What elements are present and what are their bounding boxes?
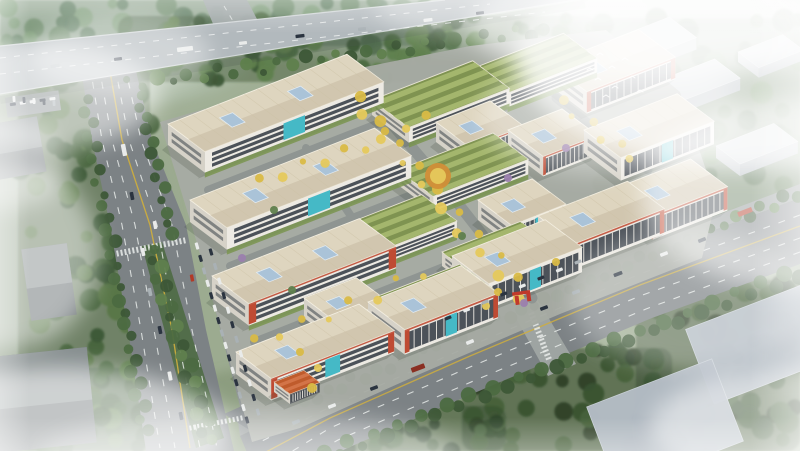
street-tree: [549, 359, 564, 374]
street-tree: [117, 317, 131, 331]
vignette-bottom: [0, 417, 800, 451]
street-tree: [360, 45, 373, 58]
aerial-rendering-industrial-park: [0, 0, 800, 451]
tree-canopy: [71, 167, 87, 183]
street-tree: [112, 294, 126, 308]
street-tree: [391, 40, 401, 50]
campus-tree: [458, 232, 466, 240]
street-tree: [317, 56, 325, 64]
campus-tree: [552, 258, 560, 266]
red-accent-strip: [388, 332, 394, 354]
campus-tree: [504, 174, 512, 182]
street-tree: [376, 134, 386, 144]
street-tree: [126, 331, 136, 341]
street-tree: [109, 234, 123, 248]
street-tree: [514, 372, 524, 382]
street-tree: [184, 358, 199, 373]
street-tree: [357, 109, 368, 120]
street-tree: [140, 123, 152, 135]
vignette-left: [0, 0, 30, 451]
tree-canopy: [518, 400, 535, 417]
street-tree: [165, 300, 178, 313]
campus-tree: [520, 299, 528, 307]
street-tree: [461, 387, 476, 402]
street-tree: [320, 159, 329, 168]
street-tree: [331, 49, 340, 58]
street-tree: [340, 144, 348, 152]
street-tree: [513, 273, 522, 282]
street-tree: [576, 353, 587, 364]
street-tree: [440, 398, 455, 413]
campus-tree: [238, 254, 246, 262]
street-tree: [114, 262, 122, 270]
street-tree: [400, 160, 406, 166]
street-tree: [157, 196, 165, 204]
street-tree: [90, 178, 99, 187]
street-tree: [200, 74, 210, 84]
street-tree: [99, 223, 112, 236]
street-tree: [96, 200, 107, 211]
street-tree: [362, 146, 369, 153]
street-tree: [415, 161, 424, 170]
street-tree: [150, 274, 161, 285]
street-tree: [373, 296, 382, 305]
street-tree: [130, 354, 143, 367]
street-tree: [456, 208, 464, 216]
campus-tree: [314, 364, 322, 372]
street-tree: [104, 250, 114, 260]
street-tree: [165, 313, 174, 322]
campus-tree: [430, 168, 446, 184]
street-tree: [121, 308, 131, 318]
fog-patch: [480, 55, 740, 175]
street-tree: [396, 139, 404, 147]
street-tree: [375, 115, 387, 127]
campus-tree: [288, 286, 296, 294]
street-tree: [255, 174, 264, 183]
tree-canopy: [616, 365, 634, 383]
street-tree: [240, 58, 253, 71]
street-tree: [124, 344, 134, 354]
street-tree: [150, 245, 160, 255]
street-tree: [299, 49, 313, 63]
street-tree: [148, 136, 160, 148]
street-tree: [381, 127, 389, 135]
vignette-right: [750, 0, 800, 451]
street-tree: [189, 376, 202, 389]
street-tree: [250, 334, 258, 342]
street-tree: [475, 230, 483, 238]
street-tree: [393, 275, 399, 281]
street-tree: [421, 37, 429, 45]
street-tree: [526, 373, 536, 383]
street-tree: [94, 164, 105, 175]
campus-tree: [270, 206, 278, 214]
street-tree: [165, 227, 179, 241]
street-tree: [177, 339, 189, 351]
street-tree: [176, 350, 188, 362]
red-accent-strip: [249, 303, 256, 325]
street-tree: [475, 248, 484, 257]
street-tree: [108, 273, 120, 285]
street-tree: [100, 191, 108, 199]
street-tree: [344, 296, 352, 304]
street-tree: [493, 270, 505, 282]
red-accent-strip: [389, 248, 396, 270]
tree-canopy: [90, 328, 104, 342]
street-tree: [500, 380, 514, 394]
street-tree: [163, 219, 171, 227]
street-tree: [286, 58, 299, 71]
street-tree: [145, 147, 158, 160]
street-tree: [422, 111, 431, 120]
street-tree: [152, 159, 164, 171]
street-tree: [479, 390, 492, 403]
street-tree: [155, 293, 167, 305]
scene-svg: [0, 0, 800, 451]
campus-tree: [296, 348, 304, 356]
street-tree: [402, 125, 410, 133]
street-tree: [300, 158, 306, 164]
street-tree: [377, 49, 387, 59]
street-tree: [435, 202, 447, 214]
street-tree: [420, 273, 427, 280]
street-tree: [326, 317, 332, 323]
street-tree: [150, 172, 160, 182]
street-tree: [436, 40, 445, 49]
street-tree: [272, 57, 280, 65]
street-tree: [166, 330, 180, 344]
street-tree: [355, 91, 366, 102]
street-tree: [117, 283, 125, 291]
tree-canopy: [556, 375, 569, 388]
street-tree: [155, 260, 169, 274]
street-tree: [160, 279, 173, 292]
red-accent-strip: [405, 330, 410, 354]
street-tree: [278, 172, 288, 182]
red-accent-strip: [493, 295, 498, 319]
street-tree: [276, 333, 283, 340]
street-tree: [405, 47, 415, 57]
street-tree: [212, 63, 222, 73]
street-tree: [534, 362, 548, 376]
street-tree: [161, 207, 173, 219]
street-tree: [86, 154, 96, 164]
street-tree: [228, 69, 238, 79]
vignette-top: [0, 0, 800, 34]
street-tree: [159, 181, 171, 193]
street-tree: [260, 69, 267, 76]
campus-tree: [307, 383, 317, 393]
street-tree: [418, 181, 426, 189]
street-tree: [104, 213, 114, 223]
street-tree: [298, 315, 306, 323]
street-tree: [498, 252, 505, 259]
